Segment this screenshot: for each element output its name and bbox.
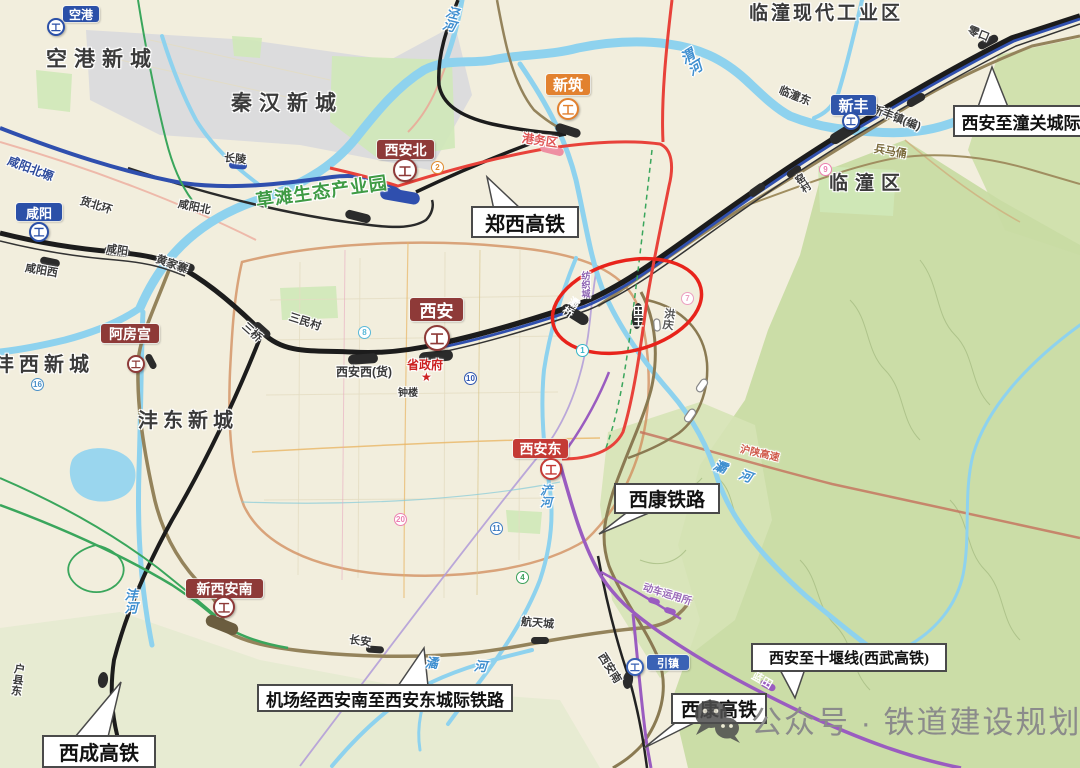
map-label: 钟楼 <box>398 389 418 400</box>
station-badge-xianyang: 咸阳 <box>16 203 62 221</box>
map-label: ★ <box>421 371 432 384</box>
railway-logo-icon: 工 <box>213 596 235 618</box>
watermark-text: 公众号 · 铁道建设规划 <box>751 697 1080 742</box>
metro-line-badge: 9 <box>819 163 832 176</box>
road <box>477 250 480 595</box>
map-label: 浐河 <box>539 484 552 508</box>
lake-kunming <box>70 448 136 501</box>
xian-railway-hub-map: 空港新城秦汉新城临潼现代工业区临潼区沣西新城沣东新城草滩生态产业园泾河渭河灞河浐… <box>0 0 1080 768</box>
map-label: 秦汉新城 <box>231 93 343 115</box>
metro-line-badge: 1 <box>576 344 589 357</box>
railway-logo-icon: 工 <box>393 158 417 182</box>
metro-line-badge: 8 <box>358 326 371 339</box>
railway-logo-icon: 工 <box>47 18 65 36</box>
park <box>506 510 542 534</box>
metro-line-badge: 2 <box>431 161 444 174</box>
metro-line-badge: 7 <box>681 292 694 305</box>
metro-line-badge: 20 <box>394 513 407 526</box>
map-label: 田王 <box>631 305 643 327</box>
railway-logo-icon: 工 <box>626 658 644 676</box>
station-badge-xian: 西安 <box>410 298 463 321</box>
wechat-icon <box>691 693 743 745</box>
map-label: 沣东新城 <box>138 411 238 432</box>
railway-red-north <box>663 0 672 142</box>
map-label: 沣河 <box>123 588 137 614</box>
park <box>36 70 72 112</box>
map-label: 空港新城 <box>46 49 158 71</box>
station-badge-xianbei: 西安北 <box>377 140 434 159</box>
callout-label-airport-intercity: 机场经西安南至西安东城际铁路 <box>257 684 513 712</box>
station-badge-xiandong: 西安东 <box>513 439 568 458</box>
road <box>404 242 408 598</box>
railway-purple-xiandong <box>563 372 609 454</box>
callout-label-zhengxi-hsr: 郑西高铁 <box>471 206 579 238</box>
station-badge-konggang: 空港 <box>63 6 99 22</box>
railway-logo-icon: 工 <box>842 112 860 130</box>
watermark: 公众号 · 铁道建设规划 <box>691 693 1080 745</box>
station-oval <box>144 353 158 370</box>
park <box>232 36 262 58</box>
station-badge-xinzhu: 新筑 <box>546 74 590 95</box>
railway-green-loop <box>68 545 123 592</box>
map-label: 西安西(货) <box>336 366 392 379</box>
station-oval <box>531 637 549 644</box>
map-label: 临潼现代工业区 <box>749 4 903 24</box>
station-badge-afanggong: 阿房宫 <box>101 324 159 343</box>
metro-line-badge: 11 <box>490 522 503 535</box>
metro-line-badge: 10 <box>464 372 477 385</box>
callout-pointer-airport-intercity <box>398 648 428 686</box>
street-grid <box>268 336 560 340</box>
railway-logo-icon: 工 <box>127 355 145 373</box>
railway-logo-icon: 工 <box>540 458 562 480</box>
metro-line-badge: 4 <box>516 571 529 584</box>
railway-logo-icon: 工 <box>29 222 49 242</box>
station-badge-yinzhen: 引镇 <box>647 655 689 670</box>
map-label: 洪庆 <box>660 307 674 330</box>
railway-longhai-west <box>0 233 438 353</box>
callout-label-tongguan-intercity: 西安至潼关城际 <box>953 105 1080 137</box>
railway-logo-icon: 工 <box>424 325 450 351</box>
station-oval <box>348 353 379 365</box>
map-label: 长陵 <box>223 153 246 167</box>
callout-label-xicheng-hsr: 西成高铁 <box>42 735 156 768</box>
callout-label-xikang-railway: 西康铁路 <box>614 483 720 514</box>
railway-logo-icon: 工 <box>557 98 579 120</box>
callout-label-xiwu-hsr: 西安至十堰线(西武高铁) <box>751 643 947 672</box>
map-label: 沣西新城 <box>0 355 94 376</box>
street-grid <box>358 258 360 578</box>
metro-line-badge: 16 <box>31 378 44 391</box>
station-oval <box>695 378 709 393</box>
map-label: 纺织城 <box>580 271 589 298</box>
map-label: 临潼区 <box>829 174 907 194</box>
